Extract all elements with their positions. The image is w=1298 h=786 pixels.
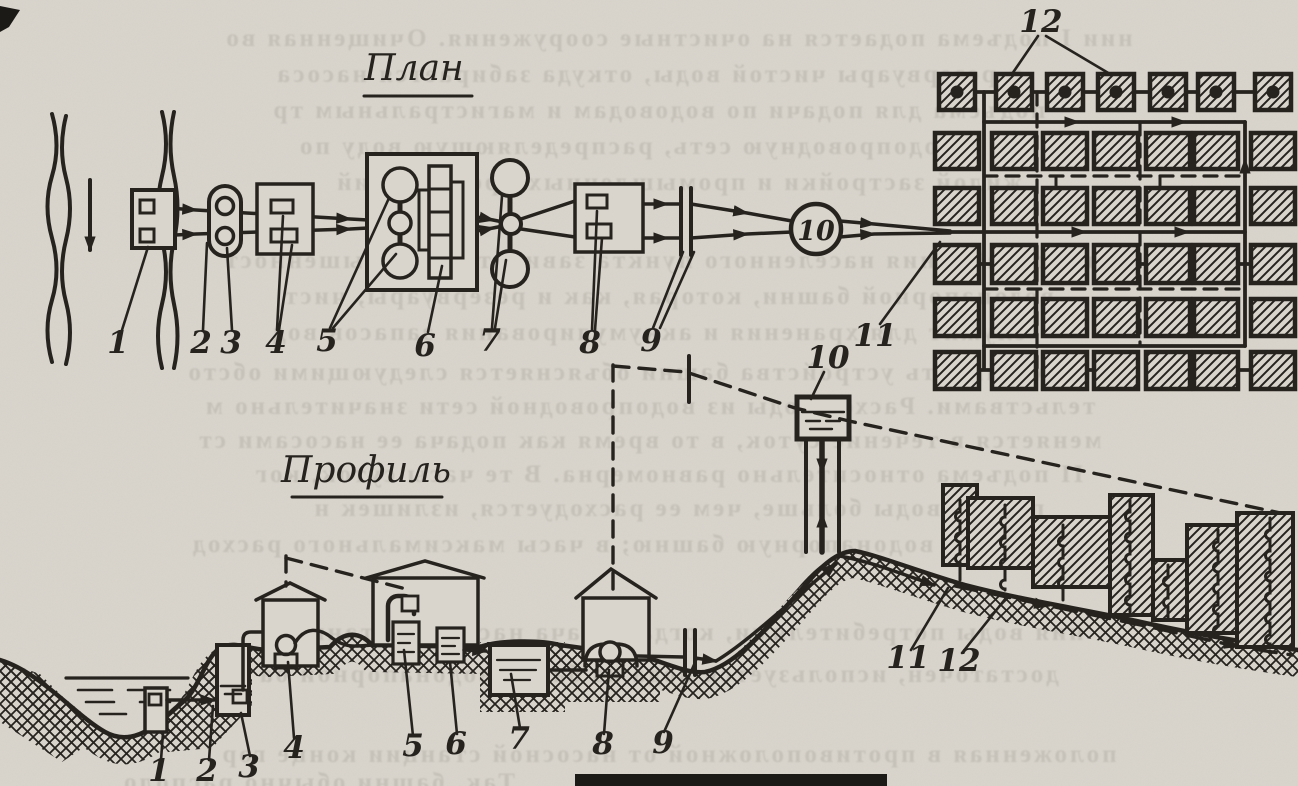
profile-number-1: 1 <box>148 753 170 786</box>
plan-number-9: 9 <box>640 323 662 359</box>
plan-number-12: 12 <box>1019 4 1062 40</box>
pump-symbol-2 <box>600 642 620 662</box>
profile-title: Профиль <box>280 450 451 497</box>
profile-number-4: 4 <box>283 730 305 766</box>
city-block <box>935 245 979 283</box>
city-block <box>1094 299 1138 336</box>
water-tower-plan: 10 <box>791 204 841 254</box>
connection-dot <box>1110 86 1123 99</box>
plan-title: План <box>363 48 472 96</box>
dosing-box <box>402 596 418 611</box>
city-block <box>1094 133 1138 169</box>
plan-title-text: План <box>363 48 464 89</box>
mixer <box>389 212 411 234</box>
city-block <box>1251 133 1295 169</box>
building <box>1187 525 1237 633</box>
city-block <box>992 352 1036 389</box>
plan-number-6: 6 <box>414 328 436 364</box>
plan-number-1: 1 <box>107 325 129 361</box>
profile-number-7: 7 <box>508 721 530 757</box>
plan-number-4: 4 <box>265 325 287 361</box>
city-block <box>1146 188 1190 224</box>
city-block <box>1194 133 1238 169</box>
city-block <box>1094 352 1138 389</box>
city-block <box>1251 188 1295 224</box>
city-block <box>1043 188 1087 224</box>
reservoir-tank <box>492 160 528 196</box>
building <box>1033 517 1113 587</box>
scanned-textbook-figure: нии I подъема подается на очистные соору… <box>0 0 1298 786</box>
connection-dot <box>1008 86 1021 99</box>
plan-number-2: 2 <box>189 325 212 361</box>
city-block <box>1251 245 1295 283</box>
plan-number-3: 3 <box>220 325 242 361</box>
bottom-black-bar <box>575 774 887 786</box>
city-block <box>992 188 1036 224</box>
city-block <box>1043 299 1087 336</box>
connection-dot <box>1267 86 1280 99</box>
bleed-line: подъема для подачи по водоводам и магист… <box>271 97 1046 124</box>
settler-tank <box>383 244 417 278</box>
filtered-water-pipe <box>464 650 486 651</box>
profile-number-11: 11 <box>886 640 929 676</box>
building <box>1153 560 1187 620</box>
plan-number-5: 5 <box>316 323 338 359</box>
building <box>968 498 1033 568</box>
city-block <box>1251 299 1295 336</box>
bleed-line: подача воды больше, чем ее расходуется, … <box>312 495 1045 522</box>
water-tower-number: 10 <box>797 216 835 247</box>
city-block <box>1094 188 1138 224</box>
connection-dot <box>1059 86 1072 99</box>
ps2-discharge <box>637 656 684 657</box>
pump-station-2-plan <box>575 184 643 252</box>
connection-dot <box>951 86 964 99</box>
city-block <box>1146 352 1190 389</box>
city-block <box>1194 352 1238 389</box>
profile-number-5: 5 <box>402 728 424 764</box>
connection-dot <box>1162 86 1175 99</box>
profile-number-8: 8 <box>591 726 614 762</box>
city-block <box>935 352 979 389</box>
city-block <box>1194 245 1238 283</box>
city-block <box>1043 133 1087 169</box>
city-block <box>935 188 979 224</box>
ps1-building <box>263 600 318 666</box>
city-block <box>935 299 979 336</box>
profile-number-6: 6 <box>445 726 467 762</box>
city-block <box>992 245 1036 283</box>
plan-number-8: 8 <box>578 325 601 361</box>
intake-plan <box>132 190 175 248</box>
city-block <box>1194 299 1238 336</box>
profile-number-9: 9 <box>652 725 674 761</box>
city-block <box>1194 188 1238 224</box>
city-block <box>1146 133 1190 169</box>
city-block <box>1146 245 1190 283</box>
city-block <box>992 133 1036 169</box>
city-block <box>992 299 1036 336</box>
bleed-line: тельствами. Расход воды из водопроводной… <box>203 393 1095 420</box>
profile-number-2: 2 <box>195 753 218 786</box>
plan-number-7: 7 <box>479 323 501 359</box>
junction-chamber <box>501 214 521 234</box>
connection-dot <box>1210 86 1223 99</box>
city-block <box>1251 352 1295 389</box>
filters-column <box>429 166 451 278</box>
profile-number-10: 10 <box>806 340 850 376</box>
plan-number-11: 11 <box>853 318 896 354</box>
ps2-box <box>575 184 643 252</box>
pump-station-1-plan <box>257 184 313 254</box>
settler-tank <box>383 168 417 202</box>
city-block <box>1043 352 1087 389</box>
city-block <box>1043 245 1087 283</box>
bleed-line: нии I подъема подается на очистные соору… <box>223 25 1132 52</box>
city-block <box>1146 299 1190 336</box>
profile-number-3: 3 <box>238 749 260 785</box>
city-block <box>1094 245 1138 283</box>
bleed-line: Так, башни обычно располо <box>121 769 515 786</box>
city-block <box>935 133 979 169</box>
profile-title-text: Профиль <box>280 450 451 491</box>
water-supply-scheme-figure: нии I подъема подается на очистные соору… <box>0 0 1298 786</box>
shore-well-plan <box>209 186 241 256</box>
pump-symbol <box>277 636 296 655</box>
profile-number-12: 12 <box>937 643 980 679</box>
